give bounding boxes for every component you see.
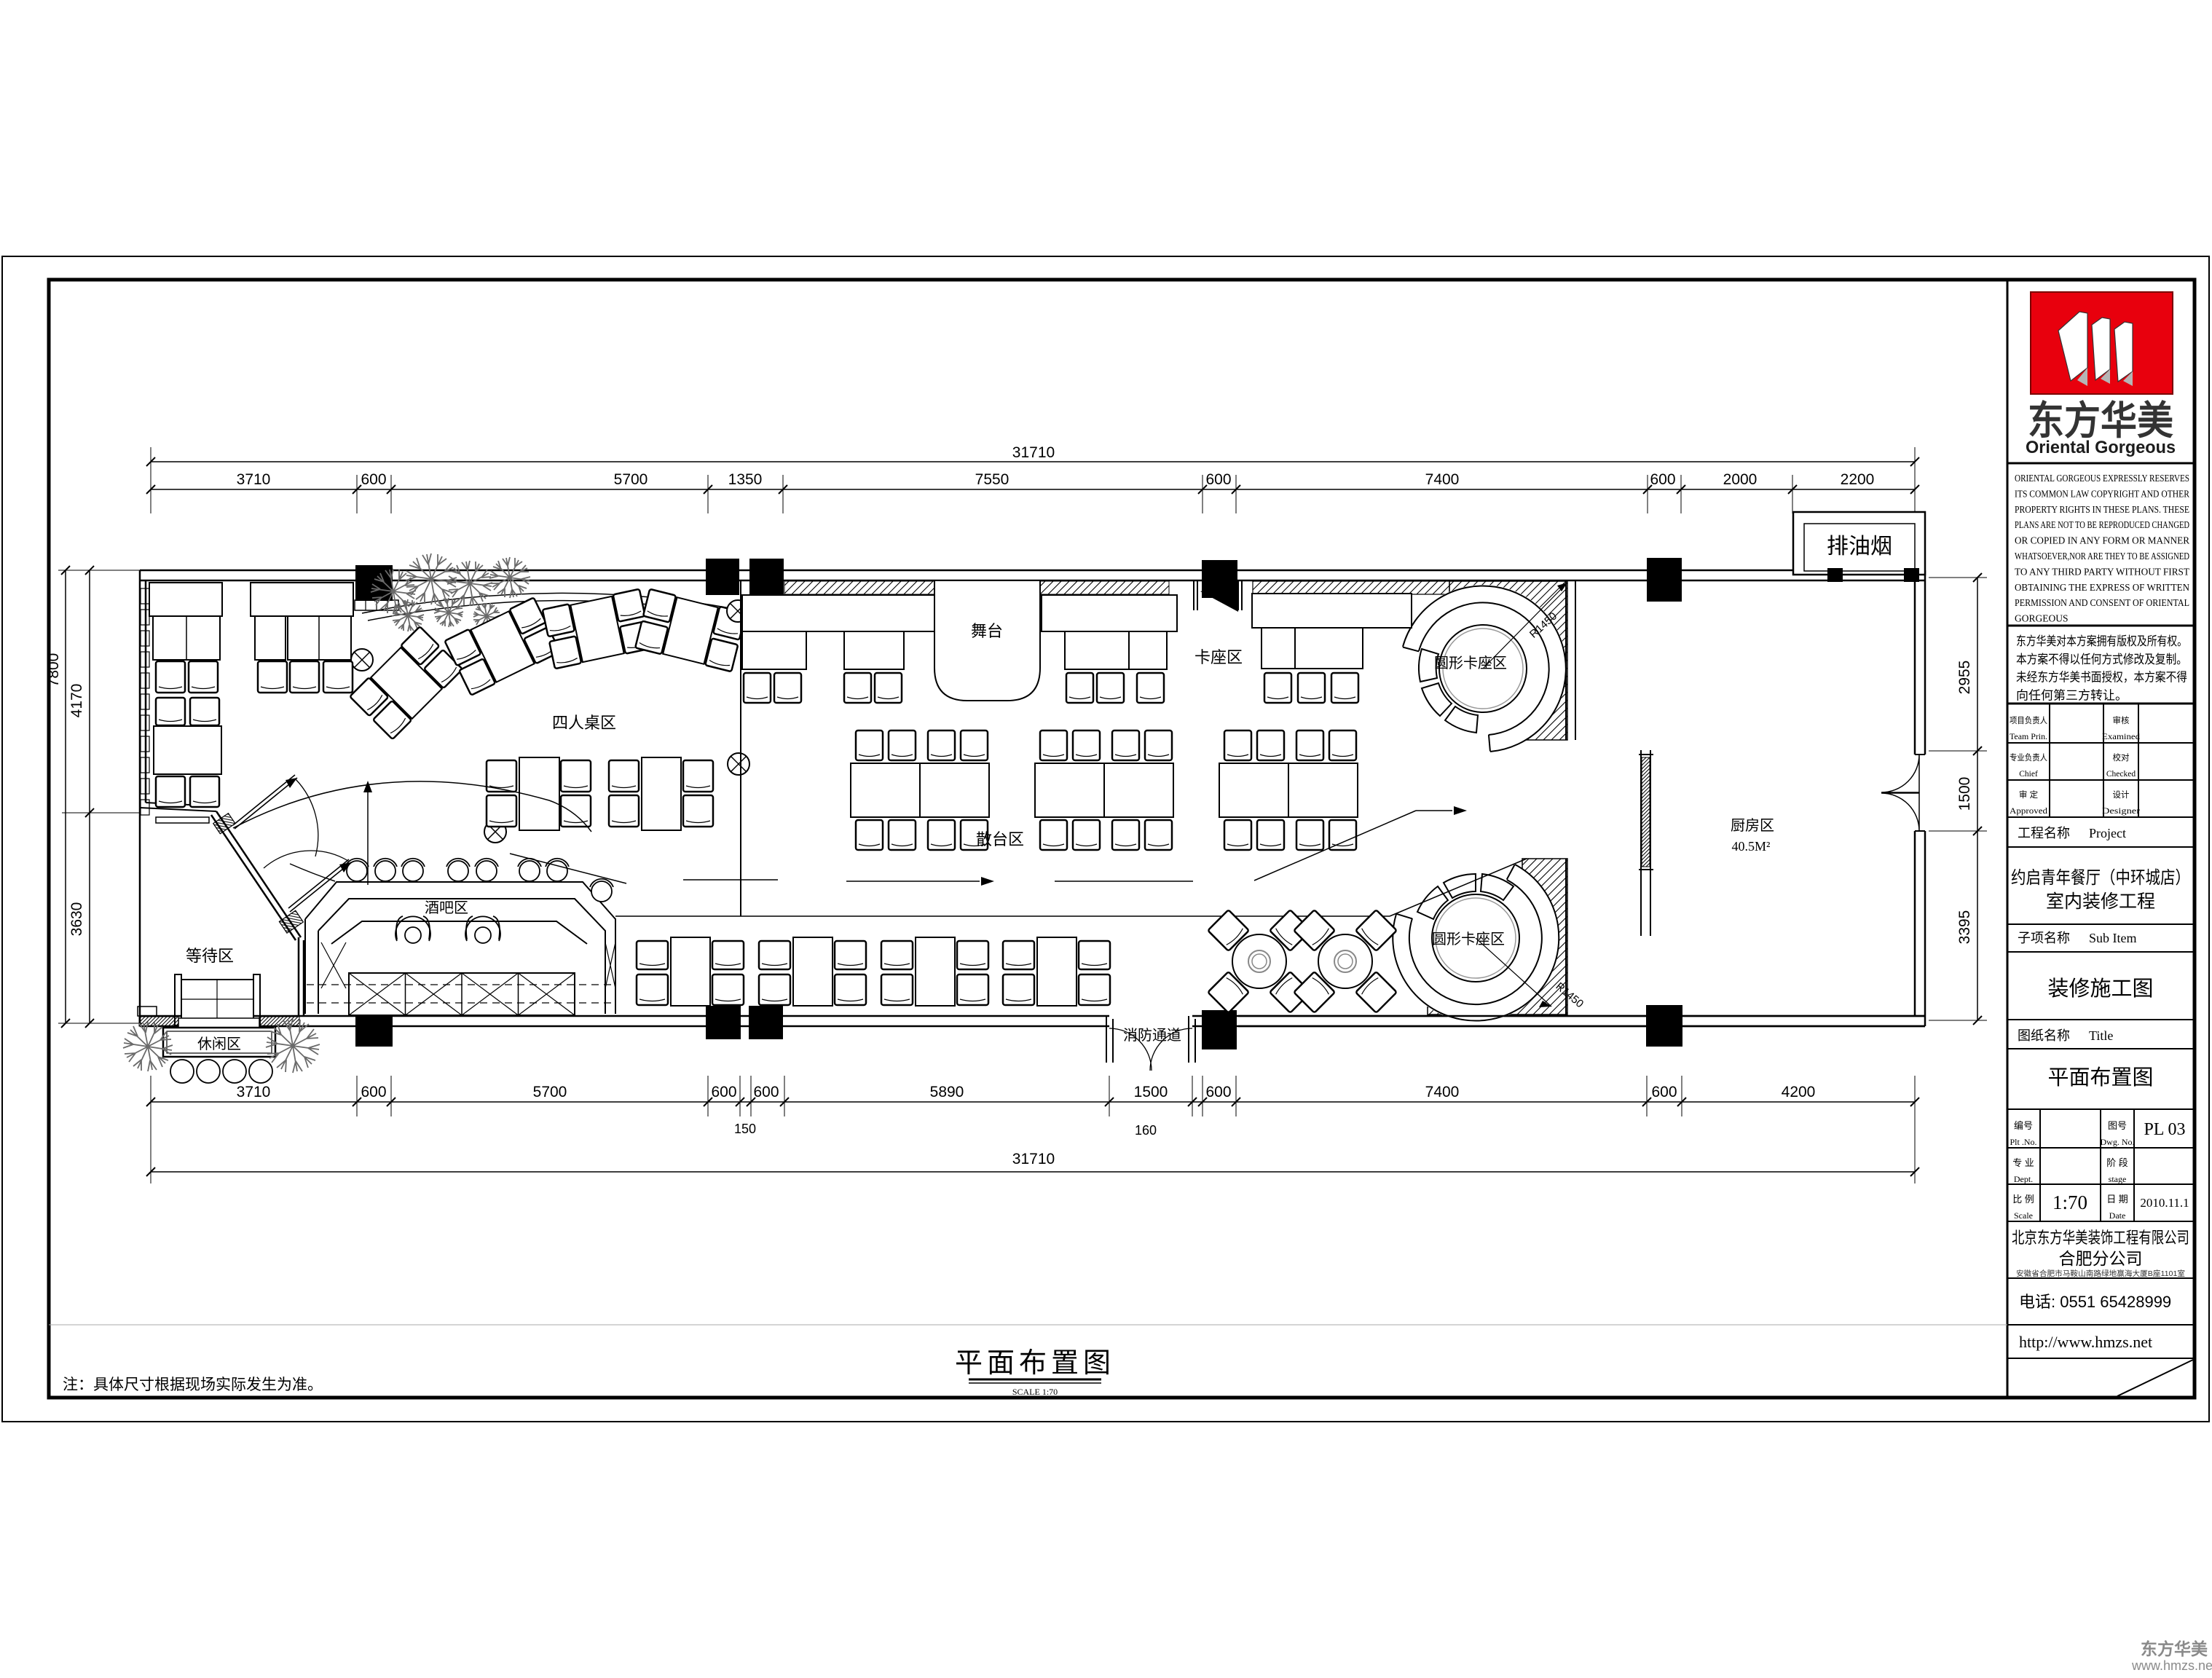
svg-text:ITS COMMON LAW COPYRIGHT AND O: ITS COMMON LAW COPYRIGHT AND OTHER — [2015, 488, 2189, 499]
svg-text:约启青年餐厅（中环城店）: 约启青年餐厅（中环城店） — [2011, 868, 2190, 888]
svg-text:日 期: 日 期 — [2106, 1194, 2128, 1205]
svg-text:Dept.: Dept. — [2014, 1174, 2033, 1184]
svg-text:校对: 校对 — [2113, 752, 2130, 763]
svg-text:stage: stage — [2109, 1174, 2127, 1184]
svg-text:600: 600 — [711, 1084, 736, 1100]
svg-text:4170: 4170 — [68, 684, 85, 718]
svg-text:舞台: 舞台 — [971, 622, 1003, 640]
svg-text:审核: 审核 — [2113, 715, 2130, 725]
svg-text:31710: 31710 — [1012, 1151, 1055, 1167]
svg-text:东方华美对本方案拥有版权及所有权。: 东方华美对本方案拥有版权及所有权。 — [2016, 634, 2187, 648]
svg-text:专业负责人: 专业负责人 — [2010, 752, 2047, 763]
svg-text:600: 600 — [361, 1084, 386, 1100]
svg-text:2000: 2000 — [1723, 471, 1758, 488]
svg-text:31710: 31710 — [1012, 444, 1055, 461]
svg-text:3395: 3395 — [1956, 910, 1973, 945]
svg-text:1500: 1500 — [1134, 1084, 1168, 1100]
svg-text:工程名称: 工程名称 — [2018, 826, 2070, 840]
svg-text:专 业: 专 业 — [2012, 1157, 2034, 1168]
svg-text:安徽省合肥市马鞍山南路绿地赢海大厦B座1101室: 安徽省合肥市马鞍山南路绿地赢海大厦B座1101室 — [2016, 1269, 2185, 1278]
svg-text:平面布置图: 平面布置图 — [955, 1348, 1115, 1379]
svg-text:5700: 5700 — [614, 471, 648, 488]
svg-text:2955: 2955 — [1956, 661, 1973, 695]
svg-text:http://www.hmzs.net: http://www.hmzs.net — [2019, 1333, 2152, 1351]
svg-text:厨房区: 厨房区 — [1731, 817, 1774, 834]
svg-text:编号: 编号 — [2014, 1120, 2033, 1131]
svg-text:3710: 3710 — [237, 1084, 271, 1100]
svg-text:东方华美: 东方华美 — [2141, 1639, 2208, 1658]
svg-text:Scale: Scale — [2014, 1210, 2033, 1221]
svg-text:ORIENTAL GORGEOUS EXPRESSLY RE: ORIENTAL GORGEOUS EXPRESSLY RESERVES — [2015, 473, 2189, 484]
svg-text:图纸名称: 图纸名称 — [2018, 1028, 2070, 1043]
svg-text:OBTAINING THE EXPRESS OF WRITT: OBTAINING THE EXPRESS OF WRITTEN — [2015, 582, 2189, 593]
svg-text:600: 600 — [361, 471, 386, 488]
svg-text:北京东方华美装饰工程有限公司: 北京东方华美装饰工程有限公司 — [2012, 1229, 2189, 1247]
svg-text:2010.11.1: 2010.11.1 — [2140, 1196, 2189, 1210]
svg-text:注：具体尺寸根据现场实际发生为准。: 注：具体尺寸根据现场实际发生为准。 — [63, 1376, 323, 1393]
svg-text:向任何第三方转让。: 向任何第三方转让。 — [2016, 688, 2128, 702]
svg-text:散台区: 散台区 — [976, 830, 1024, 848]
svg-text:Chief: Chief — [2019, 770, 2038, 779]
svg-text:卡座区: 卡座区 — [1194, 648, 1243, 666]
svg-text:阶 段: 阶 段 — [2106, 1157, 2128, 1168]
svg-text:GORGEOUS: GORGEOUS — [2015, 613, 2069, 624]
svg-text:4200: 4200 — [1782, 1084, 1816, 1100]
svg-text:室内装修工程: 室内装修工程 — [2046, 891, 2155, 912]
svg-text:1:70: 1:70 — [2052, 1191, 2087, 1213]
svg-text:7400: 7400 — [1425, 471, 1460, 488]
svg-text:Plt .No.: Plt .No. — [2010, 1137, 2036, 1147]
svg-text:600: 600 — [1651, 1084, 1677, 1100]
svg-text:装修施工图: 装修施工图 — [2047, 977, 2153, 1001]
svg-text:3710: 3710 — [237, 471, 271, 488]
svg-text:Oriental Gorgeous: Oriental Gorgeous — [2026, 438, 2176, 457]
svg-text:600: 600 — [1205, 1084, 1231, 1100]
svg-text:Approved: Approved — [2010, 807, 2047, 816]
svg-text:本方案不得以任何方式修改及复制。: 本方案不得以任何方式修改及复制。 — [2016, 653, 2187, 666]
svg-text:40.5M²: 40.5M² — [1732, 839, 1771, 854]
svg-text:SCALE 1:70: SCALE 1:70 — [1012, 1387, 1058, 1397]
svg-text:Title: Title — [2089, 1028, 2113, 1043]
svg-text:7400: 7400 — [1425, 1084, 1460, 1100]
svg-text:TO ANY THIRD PARTY WITHOUT FIR: TO ANY THIRD PARTY WITHOUT FIRST — [2015, 566, 2190, 577]
svg-text:Sub Item: Sub Item — [2089, 931, 2137, 945]
svg-text:平面布置图: 平面布置图 — [2047, 1066, 2153, 1090]
svg-text:Examined: Examined — [2102, 733, 2140, 741]
svg-text:东方华美: 东方华美 — [2028, 399, 2173, 443]
svg-text:圆形卡座区: 圆形卡座区 — [1434, 655, 1507, 671]
svg-text:2200: 2200 — [1841, 471, 1875, 488]
svg-text:图号: 图号 — [2108, 1120, 2127, 1131]
svg-text:子项名称: 子项名称 — [2018, 931, 2070, 945]
svg-text:5890: 5890 — [930, 1084, 964, 1100]
svg-text:OR COPIED IN ANY FORM OR MANNE: OR COPIED IN ANY FORM OR MANNER — [2015, 535, 2189, 546]
svg-text:审 定: 审 定 — [2019, 789, 2039, 800]
svg-text:600: 600 — [1650, 471, 1675, 488]
svg-text:WHATSOEVER,NOR ARE THEY TO BE: WHATSOEVER,NOR ARE THEY TO BE ASSIGNED — [2015, 551, 2189, 562]
svg-text:Date: Date — [2109, 1210, 2126, 1221]
svg-text:1500: 1500 — [1956, 777, 1973, 811]
svg-text:PLANS ARE NOT TO BE REPRODUCED: PLANS ARE NOT TO BE REPRODUCED CHANGED — [2015, 519, 2189, 530]
svg-text:PL 03: PL 03 — [2144, 1120, 2185, 1139]
svg-text:7800: 7800 — [45, 653, 62, 688]
svg-text:设计: 设计 — [2113, 790, 2130, 800]
svg-text:Checked: Checked — [2106, 770, 2136, 779]
svg-text:Dwg. No.: Dwg. No. — [2101, 1137, 2135, 1147]
svg-text:7550: 7550 — [975, 471, 1009, 488]
svg-text:比 例: 比 例 — [2012, 1194, 2034, 1205]
svg-text:1350: 1350 — [728, 471, 763, 488]
svg-text:www.hmzs.net: www.hmzs.net — [2131, 1658, 2212, 1673]
svg-text:Project: Project — [2089, 826, 2126, 840]
svg-text:消防通道: 消防通道 — [1123, 1027, 1181, 1044]
svg-text:圆形卡座区: 圆形卡座区 — [1432, 931, 1505, 948]
svg-text:等待区: 等待区 — [186, 947, 234, 965]
svg-text:休闲区: 休闲区 — [197, 1036, 241, 1052]
svg-text:合肥分公司: 合肥分公司 — [2059, 1249, 2143, 1268]
svg-text:Designer: Designer — [2102, 807, 2140, 816]
svg-text:160: 160 — [1135, 1123, 1157, 1138]
svg-text:PERMISSION AND CONSENT OF ORIE: PERMISSION AND CONSENT OF ORIENTAL — [2015, 597, 2189, 608]
svg-text:酒吧区: 酒吧区 — [425, 899, 468, 916]
svg-text:PROPERTY RIGHTS IN THESE PLANS: PROPERTY RIGHTS IN THESE PLANS. THESE — [2015, 504, 2189, 515]
svg-text:150: 150 — [734, 1122, 756, 1136]
svg-text:四人桌区: 四人桌区 — [552, 714, 616, 732]
svg-text:3630: 3630 — [68, 902, 85, 937]
svg-text:600: 600 — [753, 1084, 779, 1100]
svg-text:600: 600 — [1205, 471, 1231, 488]
svg-text:5700: 5700 — [533, 1084, 567, 1100]
svg-text:未经东方华美书面授权，本方案不得: 未经东方华美书面授权，本方案不得 — [2016, 671, 2187, 685]
svg-text:排油烟: 排油烟 — [1827, 535, 1892, 559]
svg-text:Team Prin.: Team Prin. — [2010, 733, 2047, 741]
svg-text:电话: 0551 65428999: 电话: 0551 65428999 — [2019, 1293, 2171, 1311]
svg-text:项目负责人: 项目负责人 — [2010, 715, 2047, 725]
